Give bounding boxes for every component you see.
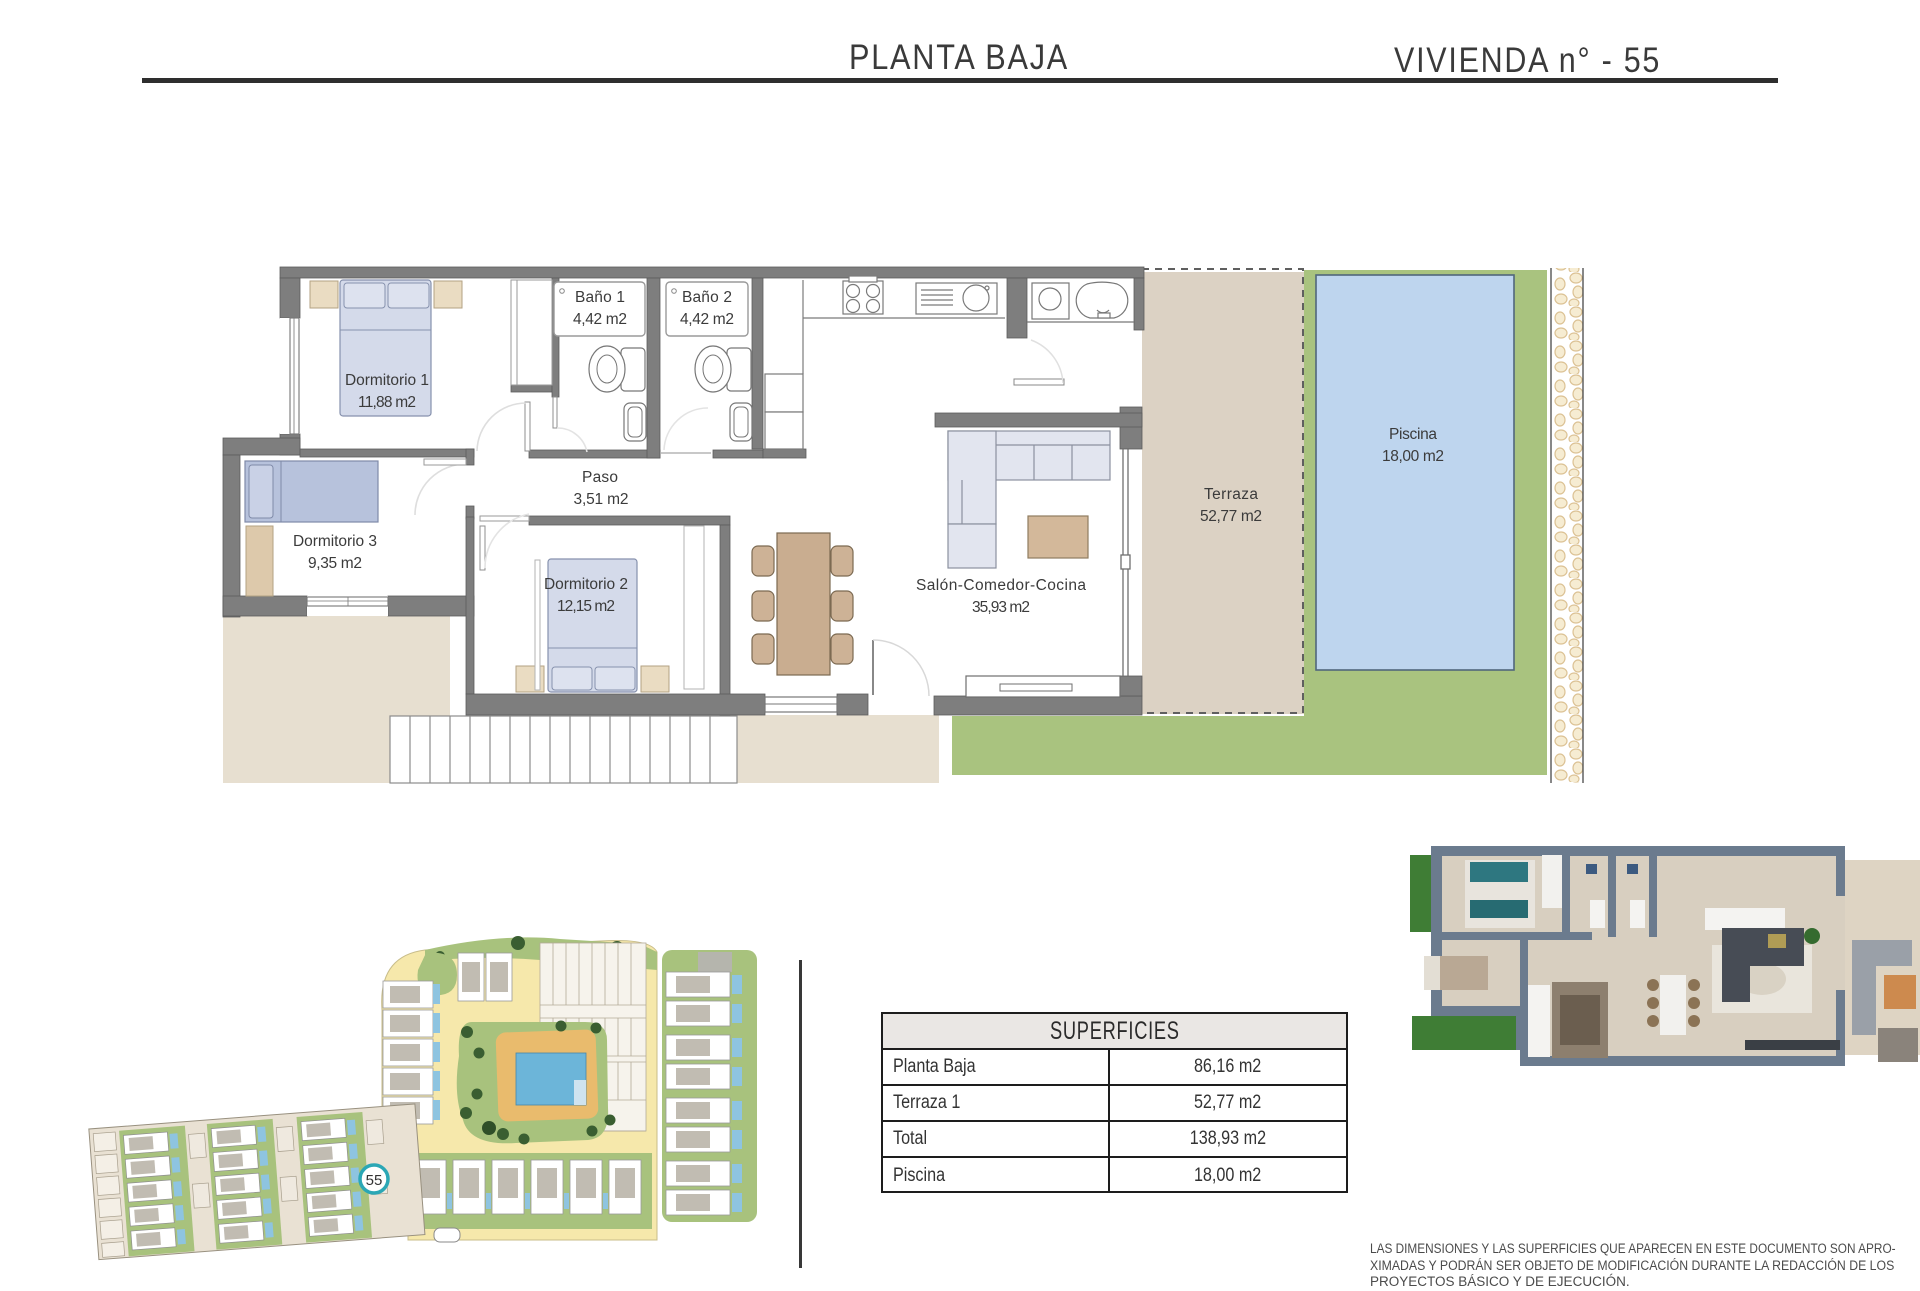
svg-text:Salón-Comedor-Cocina: Salón-Comedor-Cocina [916, 577, 1086, 594]
svg-text:35,93 m2: 35,93 m2 [972, 599, 1030, 616]
svg-text:3,51 m2: 3,51 m2 [574, 491, 629, 508]
svg-text:9,35 m2: 9,35 m2 [308, 555, 362, 572]
svg-text:Baño 1: Baño 1 [575, 289, 625, 306]
svg-text:Piscina: Piscina [1389, 426, 1437, 443]
svg-text:55: 55 [366, 1172, 383, 1189]
svg-text:Dormitorio 3: Dormitorio 3 [293, 533, 377, 550]
svg-text:Terraza: Terraza [1204, 486, 1258, 503]
svg-text:Dormitorio 1: Dormitorio 1 [345, 372, 429, 389]
svg-text:4,42 m2: 4,42 m2 [680, 311, 734, 328]
svg-text:Dormitorio 2: Dormitorio 2 [544, 576, 628, 593]
svg-text:18,00 m2: 18,00 m2 [1382, 448, 1444, 465]
svg-text:12,15 m2: 12,15 m2 [557, 598, 615, 615]
svg-text:11,88 m2: 11,88 m2 [358, 394, 416, 411]
svg-text:Paso: Paso [582, 469, 618, 486]
svg-text:4,42 m2: 4,42 m2 [573, 311, 627, 328]
svg-text:Baño 2: Baño 2 [682, 289, 732, 306]
svg-text:52,77 m2: 52,77 m2 [1200, 508, 1262, 525]
